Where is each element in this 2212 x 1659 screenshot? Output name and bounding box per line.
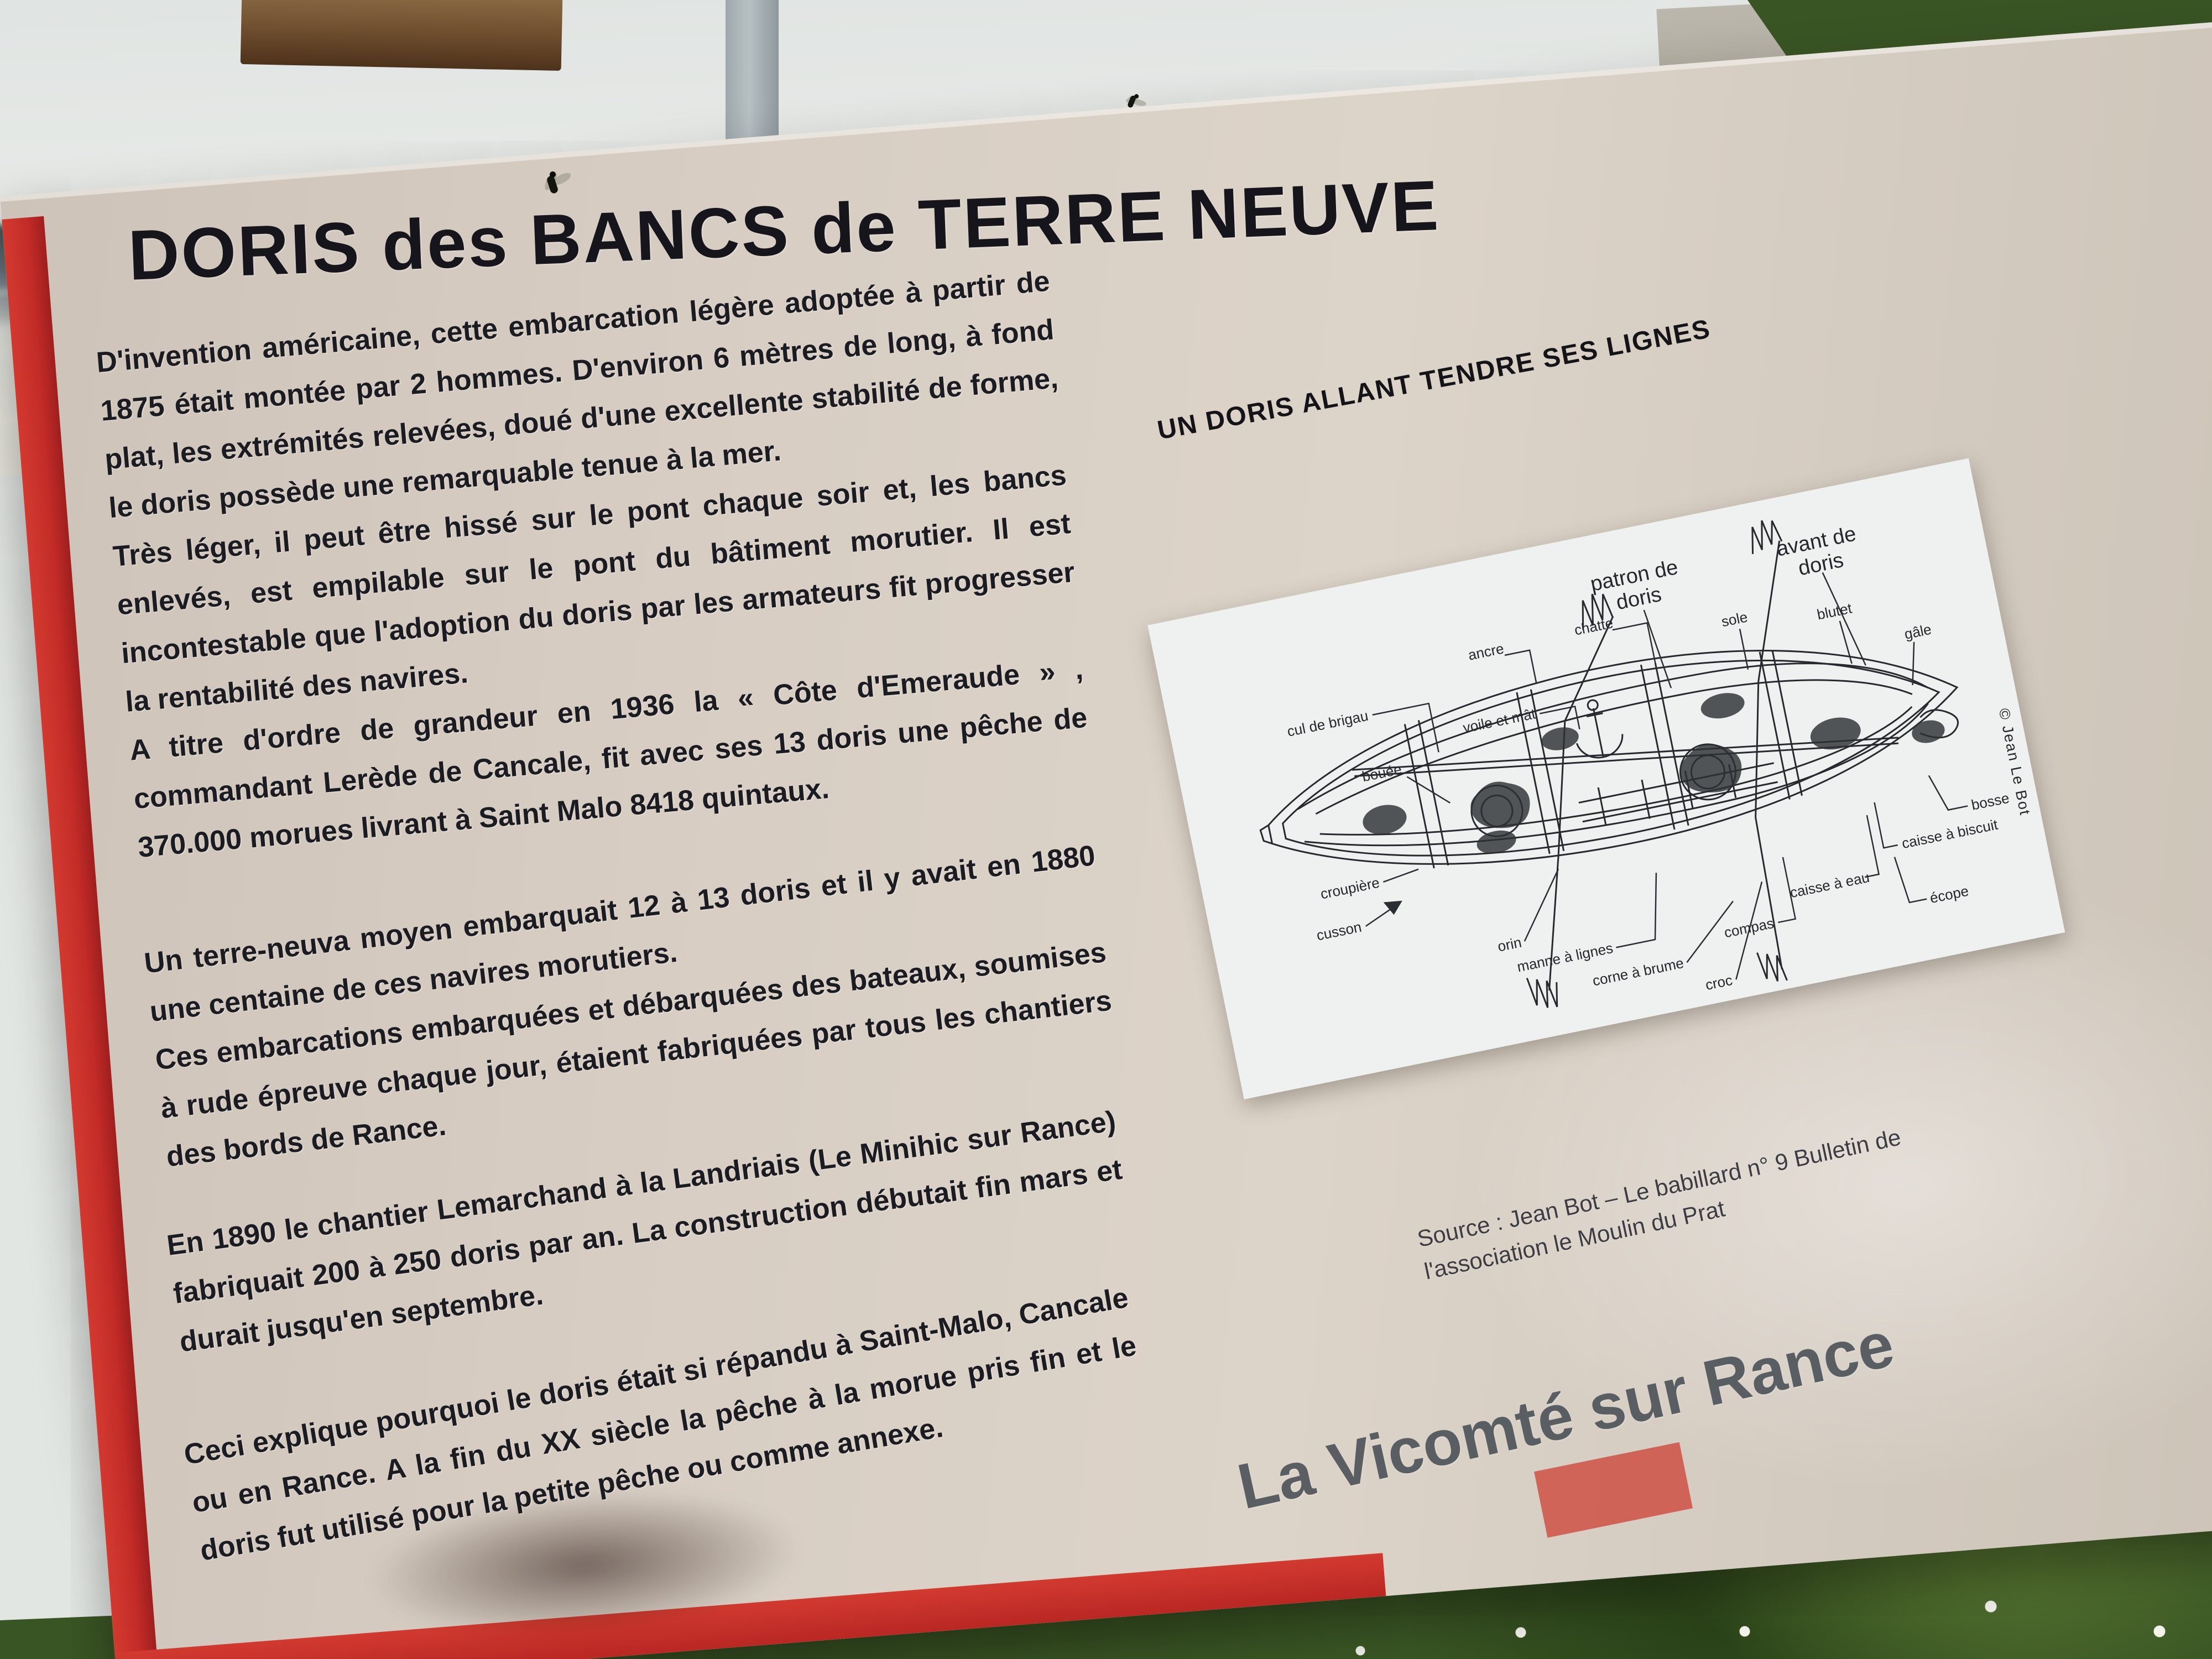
diagram-label: bosse [1970, 790, 2011, 813]
diagram-label: cusson [1315, 919, 1363, 944]
diagram-label: cul de brigau [1286, 707, 1370, 740]
information-sign: DORIS des BANCS de TERRE NEUVE D'inventi… [0, 16, 2212, 1659]
diagram-label: caisse à eau [1788, 869, 1871, 901]
diagram-label: orin [1496, 934, 1523, 955]
diagram-label: manne à lignes [1516, 940, 1615, 975]
diagram-label: écope [1928, 883, 1970, 907]
diagram-label: ancre [1467, 640, 1505, 663]
diagram-label: avant dedoris [1775, 522, 1863, 583]
diagram-label: corne à brume [1591, 954, 1685, 989]
diagram-label: croc [1704, 972, 1734, 993]
diagram-label: caisse à biscuit [1900, 816, 2000, 852]
diagram-label: chatte [1573, 614, 1614, 639]
diagram-label: croupière [1319, 874, 1381, 902]
fly-head [550, 171, 556, 178]
diagram-label: sole [1720, 608, 1749, 630]
diagram-caption: UN DORIS ALLANT TENDRE SES LIGNES [1155, 314, 1713, 446]
diagram-label: bouée [1360, 761, 1403, 785]
diagram-label: compas [1723, 915, 1775, 941]
photo-of-information-sign: DORIS des BANCS de TERRE NEUVE D'inventi… [0, 0, 2212, 1659]
diagram-label: gâle [1903, 621, 1933, 643]
paragraph-block-1: D'invention américaine, cette embarcatio… [95, 257, 1093, 872]
diagram-label: blutet [1815, 599, 1854, 623]
wooden-beam [241, 0, 563, 71]
